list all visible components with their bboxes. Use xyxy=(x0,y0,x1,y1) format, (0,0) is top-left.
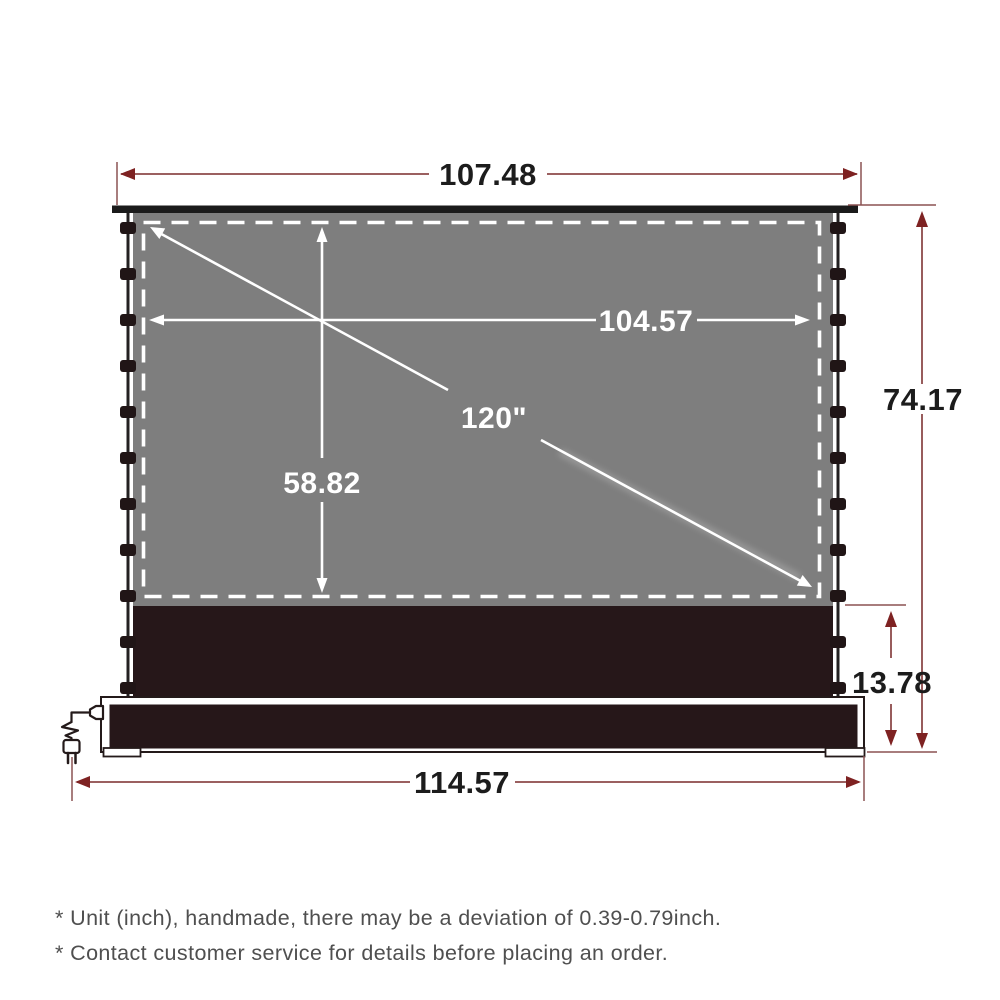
footnotes: * Unit (inch), handmade, there may be a … xyxy=(55,906,721,965)
arrow-up-icon xyxy=(916,211,928,227)
arrow-left-icon xyxy=(120,168,135,180)
tension-tab xyxy=(830,636,846,648)
arrow-down-icon xyxy=(916,733,928,749)
diagonal-label: 120" xyxy=(461,402,527,435)
base-height-label: 13.78 xyxy=(852,665,932,700)
diagram-canvas: 104.57 58.82 120" xyxy=(0,0,1000,1000)
top-width-label: 107.48 xyxy=(439,157,537,192)
total-height-label: 74.17 xyxy=(883,382,963,417)
tension-tab xyxy=(830,452,846,464)
footnote-contact: * Contact customer service for details b… xyxy=(55,941,668,965)
tension-tab xyxy=(830,314,846,326)
tension-tab xyxy=(830,268,846,280)
tension-tab xyxy=(120,222,136,234)
tension-tab xyxy=(120,406,136,418)
cable-break-squiggle xyxy=(62,722,78,741)
screen-assembly xyxy=(112,206,858,701)
base-foot-left xyxy=(104,748,141,757)
base-housing xyxy=(101,697,865,757)
tension-tab xyxy=(120,590,136,602)
arrow-right-icon xyxy=(846,776,861,788)
base-body xyxy=(110,705,858,749)
tension-tab xyxy=(830,498,846,510)
viewing-width-label: 104.57 xyxy=(599,305,694,338)
base-width-dimension: 114.57 xyxy=(72,756,864,801)
arrow-right-icon xyxy=(843,168,858,180)
projector-screen-dimension-diagram: 104.57 58.82 120" xyxy=(0,0,1000,1000)
tension-tab xyxy=(120,636,136,648)
tension-tab xyxy=(830,682,846,694)
tension-tab xyxy=(830,222,846,234)
tension-tab xyxy=(120,498,136,510)
plug-connector xyxy=(90,706,103,719)
top-width-dimension: 107.48 xyxy=(117,157,861,205)
plug-body xyxy=(64,740,80,753)
tension-tab xyxy=(120,452,136,464)
base-width-label: 114.57 xyxy=(414,765,510,800)
base-foot-right xyxy=(826,748,865,757)
arrow-left-icon xyxy=(75,776,90,788)
arrow-up-icon xyxy=(885,611,897,627)
screen-top-bar xyxy=(112,206,858,214)
tension-tab xyxy=(120,544,136,556)
tension-tab xyxy=(830,590,846,602)
tension-tab xyxy=(830,360,846,372)
power-plug-icon xyxy=(62,706,103,763)
tension-tab xyxy=(120,360,136,372)
arrow-down-icon xyxy=(885,730,897,746)
tension-tab xyxy=(120,268,136,280)
viewing-height-label: 58.82 xyxy=(283,467,361,500)
tension-tab xyxy=(120,314,136,326)
plug-cable xyxy=(72,713,91,723)
footnote-unit: * Unit (inch), handmade, there may be a … xyxy=(55,906,721,930)
tension-tab xyxy=(830,406,846,418)
tension-tab xyxy=(830,544,846,556)
screen-black-drop xyxy=(133,606,833,698)
tension-tab xyxy=(120,682,136,694)
